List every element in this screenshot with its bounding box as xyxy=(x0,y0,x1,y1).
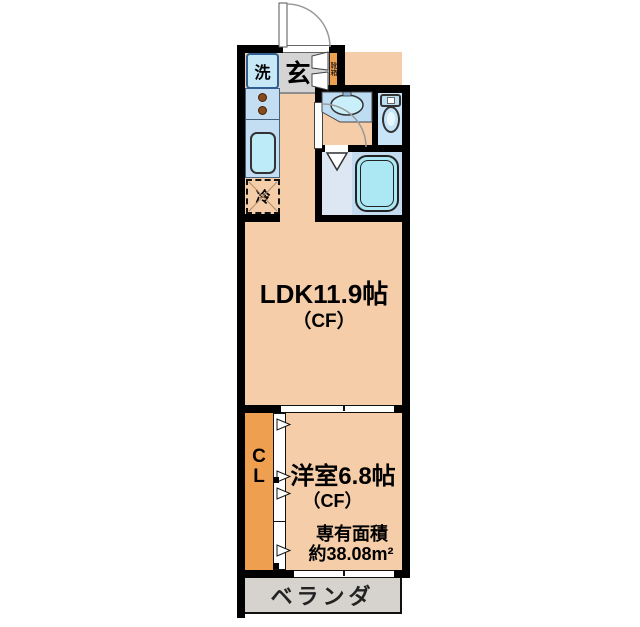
closet-letter-l: L xyxy=(245,467,273,487)
shoe-cabinet-door-icon xyxy=(312,72,328,90)
closet-letter-c: C xyxy=(245,447,273,467)
slider-arrow-icon xyxy=(277,419,290,430)
entrance-door-arc-icon xyxy=(287,4,330,47)
slider-stop-mark xyxy=(273,477,279,483)
washbasin-tap-icon xyxy=(343,92,351,96)
partition-center-tick xyxy=(343,405,345,411)
floorplan-canvas: 冷 洗 靴箱 ベランダ xyxy=(0,0,640,627)
ldk-floor-note: （CF） xyxy=(245,306,403,333)
window-center-tick xyxy=(343,570,345,576)
entrance-label: 玄 xyxy=(282,54,314,90)
shoe-cabinet-door-icon xyxy=(312,52,328,70)
entrance-door-leaf xyxy=(279,3,287,47)
folding-bath-door-icon xyxy=(327,153,347,170)
slider-stop-mark xyxy=(273,563,279,569)
area-value: 約38.08m² xyxy=(296,540,406,566)
closet-label: C L xyxy=(245,447,273,487)
bedroom-room-label: 洋室6.8帖 xyxy=(280,456,406,491)
slider-arrow-icon xyxy=(277,545,290,556)
bedroom-floor-note: （CF） xyxy=(270,487,395,513)
